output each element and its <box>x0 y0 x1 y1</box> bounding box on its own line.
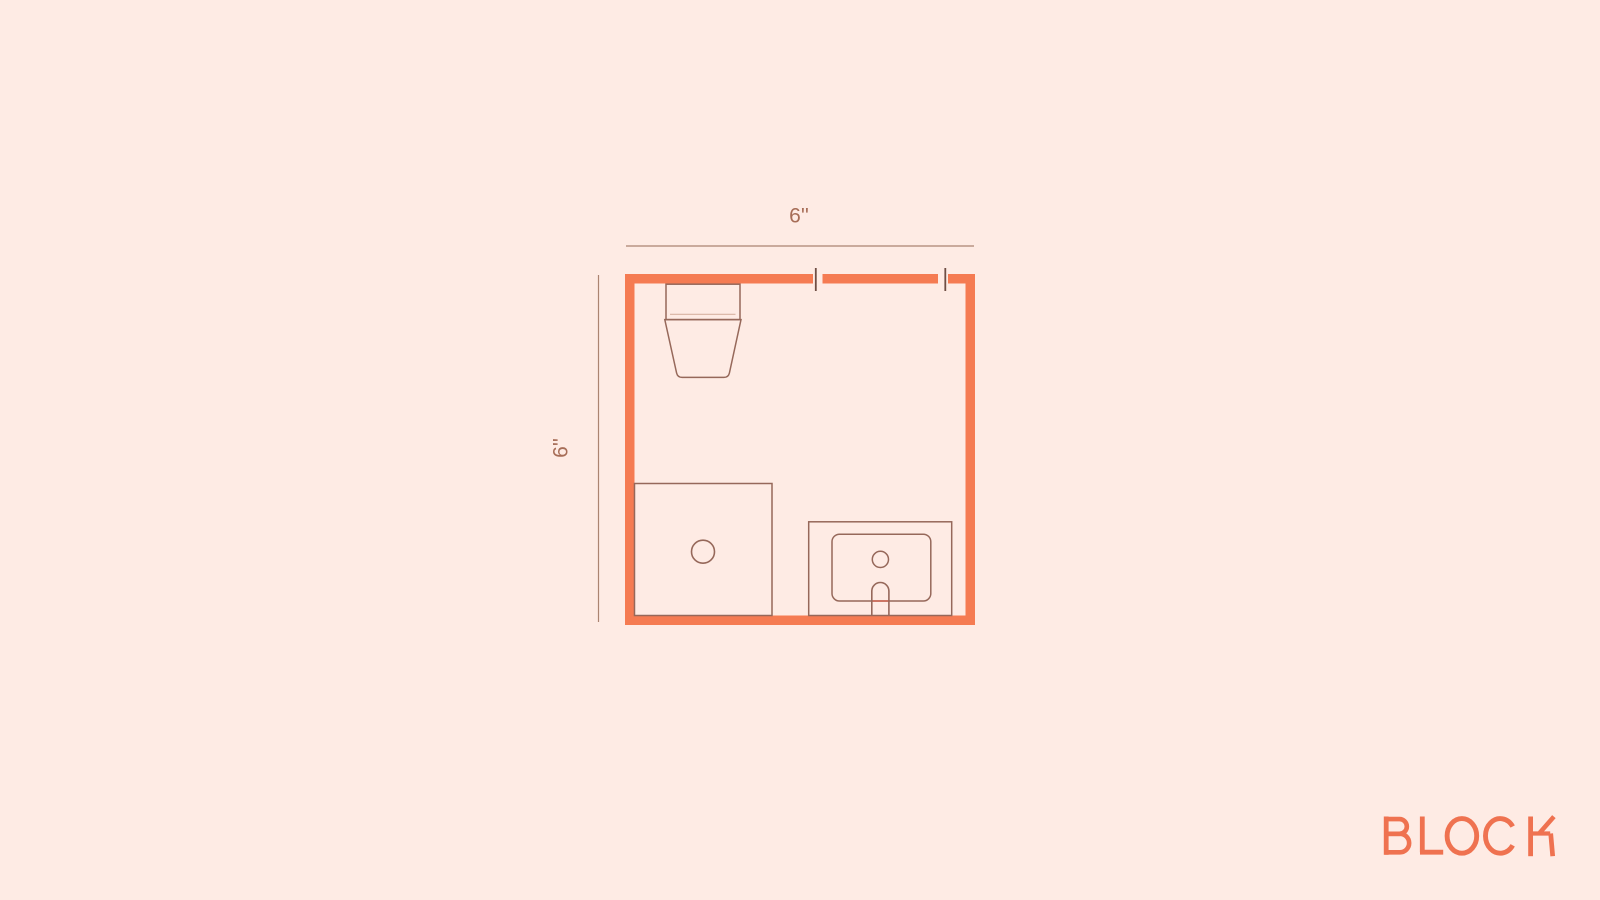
svg-text:6'': 6'' <box>789 205 809 228</box>
svg-text:6'': 6'' <box>550 438 573 458</box>
